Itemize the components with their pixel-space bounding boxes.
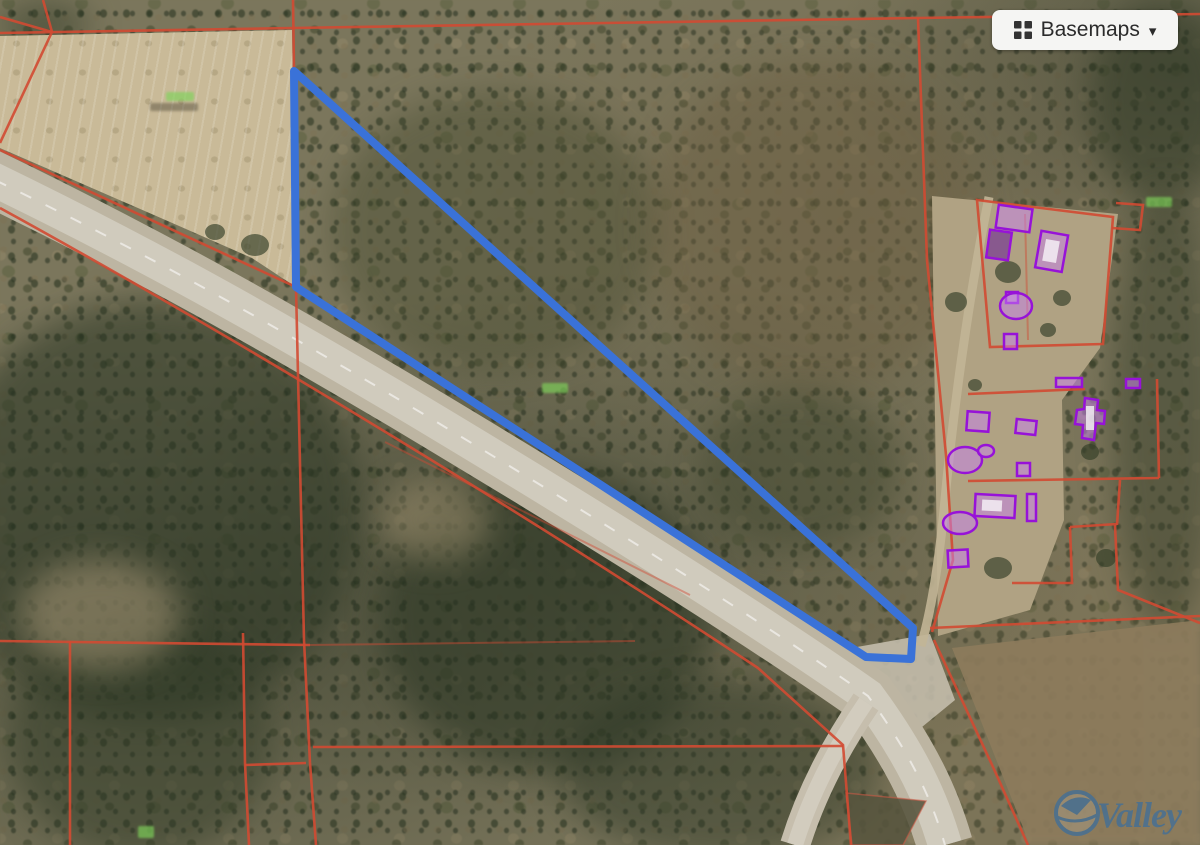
chevron-down-icon: ▾: [1149, 20, 1157, 40]
watermark-logo-icon: [1056, 792, 1098, 834]
acreage-label: [1146, 197, 1172, 207]
acreage-label: [166, 92, 194, 101]
highway-surface: [0, 168, 945, 845]
acreage-label: [138, 826, 154, 838]
map-overlay-layer: [0, 0, 1200, 845]
watermark: Valley: [1050, 782, 1200, 845]
map-canvas[interactable]: Basemaps ▾ Valley: [0, 0, 1200, 845]
watermark-brand-text: Valley: [1097, 795, 1183, 835]
basemaps-button[interactable]: Basemaps ▾: [992, 10, 1178, 50]
grid-icon: [1014, 21, 1032, 39]
acreage-label: [542, 383, 568, 393]
basemaps-button-label: Basemaps: [1041, 18, 1140, 42]
parcel-id-label: [150, 103, 198, 111]
